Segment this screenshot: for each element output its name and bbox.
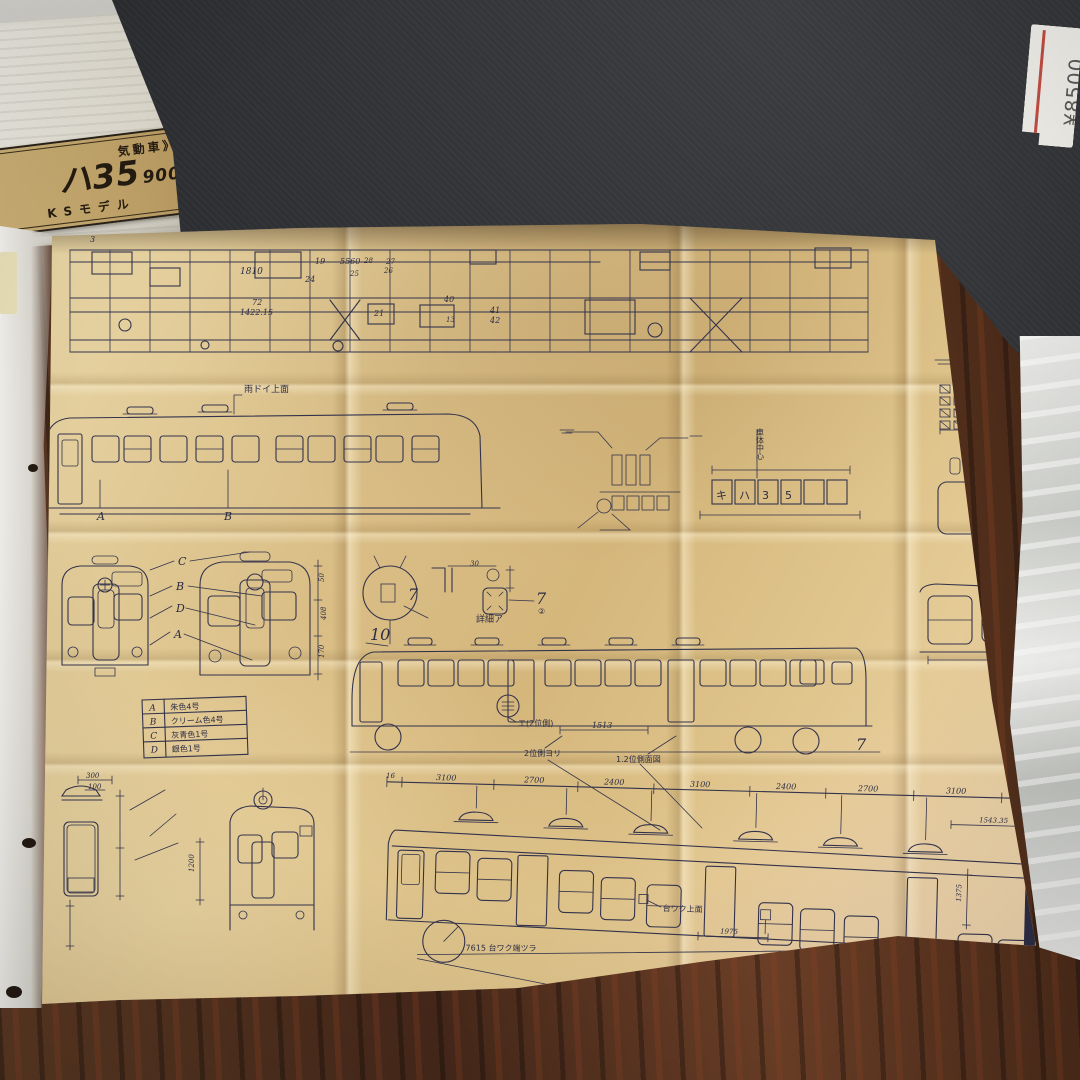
underframe-plan-view: 3 1810 19 24 5560 25 28 26 27 72 1422.15… [70,235,1024,352]
dim-300: 300 [86,772,100,780]
dim-1375: 1375 [955,883,963,902]
dim-13: 13 [446,316,455,324]
dim-1200: 1200 [188,854,196,872]
dim-1543-35: 1543.35 [979,816,1009,825]
binder-hole [28,464,38,472]
front-end-views: C B D A 50 408 170 [62,552,328,680]
line [940,385,950,393]
lettering-ki: キ [716,489,727,502]
dim-19: 19 [315,257,325,266]
line [232,436,259,462]
legend-key-a: A [148,704,156,714]
line [739,831,773,840]
line [92,436,119,462]
rain-gutter-label: 雨ドイ上面 [244,384,289,395]
line [459,812,493,821]
legend-key-b: B [149,718,157,728]
color-key-b2: B [175,580,184,593]
color-key-a2: A [173,628,182,641]
line [559,891,593,892]
dim-3100-3: 3100 [946,786,967,796]
dim-2700-2: 2700 [857,784,879,794]
line [635,660,661,686]
line [926,798,927,840]
line [542,638,566,645]
dim-170: 170 [318,644,326,658]
dim-1513: 1513 [592,721,612,730]
line [609,638,633,645]
dim-28: 28 [363,257,373,265]
color-key-d: D [175,602,185,615]
callout-circle-2: ② [538,607,545,616]
position-2-label: エ(2位側) [518,718,553,728]
line [800,930,834,931]
dim-2400-2: 2400 [775,782,797,792]
dim-16-left: 16 [386,772,396,780]
line [940,409,950,417]
line [376,436,403,462]
dim-21: 21 [373,309,384,318]
line [544,828,588,829]
dim-3100-2: 3100 [690,780,711,790]
dim-3100-1: 3100 [436,773,457,783]
line [908,843,942,852]
color-legend-table: A B C D 朱色4号 クリーム色4号 灰青色1号 銀色1号 [142,696,248,758]
legend-color-d: 銀色1号 [172,743,201,754]
line [823,837,857,846]
frame-edge-label: 7615 台ワク端ツラ [466,942,537,953]
line [730,660,756,686]
side-1-2-label: 1.2位側面図 [616,754,661,764]
line [903,853,947,854]
detail-7-drawings: 7 7 ② 詳細ア [363,556,547,644]
line [940,421,950,429]
legend-color-a: 朱色4号 [170,701,199,712]
dim-2700-1: 2700 [523,775,545,785]
line [408,638,432,645]
line [202,405,228,412]
line [160,436,187,462]
lettering-5: 5 [785,489,792,502]
line [127,407,153,414]
lettering-3: 3 [762,489,769,502]
line [308,436,335,462]
line [651,791,652,821]
line [804,480,824,504]
dim-25: 25 [349,270,359,278]
line [566,788,567,814]
line [476,786,477,808]
line [387,403,413,410]
sleeve-tab [0,252,17,314]
line [760,660,786,686]
dim-24: 24 [304,275,315,284]
dim-40: 40 [443,295,454,304]
line [488,660,514,686]
line [634,824,668,833]
line [436,872,470,873]
dim-2400-1: 2400 [603,777,625,787]
lettering-ha: ハ [739,489,750,502]
side-elevation-middle: 10 エ(2位側) 1513 7 2位側ヨリ 1.2位側面図 [350,625,880,830]
line [454,822,498,823]
callout-10: 10 [370,625,390,644]
line [758,924,792,925]
dim-1810: 1810 [240,267,263,277]
line [605,660,631,686]
dim-30: 30 [470,560,479,568]
legend-key-c: C [150,731,157,741]
dim-42: 42 [489,316,500,325]
line [601,898,635,899]
line [756,793,757,827]
legend-color-c: 灰青色1号 [171,729,208,740]
dim-50: 50 [318,573,326,582]
line [844,937,878,938]
dim-3: 3 [90,235,95,244]
line [475,638,499,645]
dim-1975: 1975 [720,928,739,936]
line [940,397,950,405]
dim-27: 27 [385,258,395,266]
line [841,796,842,834]
legend-color-b: クリーム色4号 [171,714,224,726]
line [398,660,424,686]
price-tag-red-line [1034,30,1046,135]
line [545,660,571,686]
legend-key-d: D [150,745,159,755]
dim-72: 72 [252,298,262,307]
line [676,638,700,645]
line [575,660,601,686]
dim-100: 100 [88,783,102,791]
dim-408: 408 [320,606,328,621]
door-and-front-details: 300 100 1200 [62,772,314,950]
dim-1422-15: 1422.15 [240,308,273,317]
line [734,841,778,842]
color-key-a: A [96,510,105,523]
color-key-b: B [223,510,232,523]
binder-hole [6,986,22,998]
dim-5560: 5560 [340,257,360,266]
callout-7c: 7 [856,735,867,754]
view-from-side2-label: 2位側ヨリ [524,748,561,758]
callout-7b: 7 [536,589,547,608]
body-center-label: 車体中心 [756,427,765,460]
binder-hole [22,838,36,848]
car-number-lettering-detail: キ ハ 3 5 車体中心 30 [470,427,860,568]
price-tag: ¥8500 [1021,24,1080,148]
dim-26: 26 [383,267,393,275]
side-elevation-left: 雨ドイ上面 A B [34,384,500,523]
line [827,480,847,504]
dim-41: 41 [489,306,500,315]
line [549,818,583,827]
detail-a-label: 詳細ア [476,613,503,625]
line [818,847,862,848]
line [629,834,673,835]
line [477,879,511,880]
line [458,660,484,686]
frame-top-label-2: 台ワク上面 [663,903,703,914]
line [790,660,816,686]
line [428,660,454,686]
callout-7a: 7 [408,585,419,604]
line [700,660,726,686]
color-key-c: C [178,555,187,568]
